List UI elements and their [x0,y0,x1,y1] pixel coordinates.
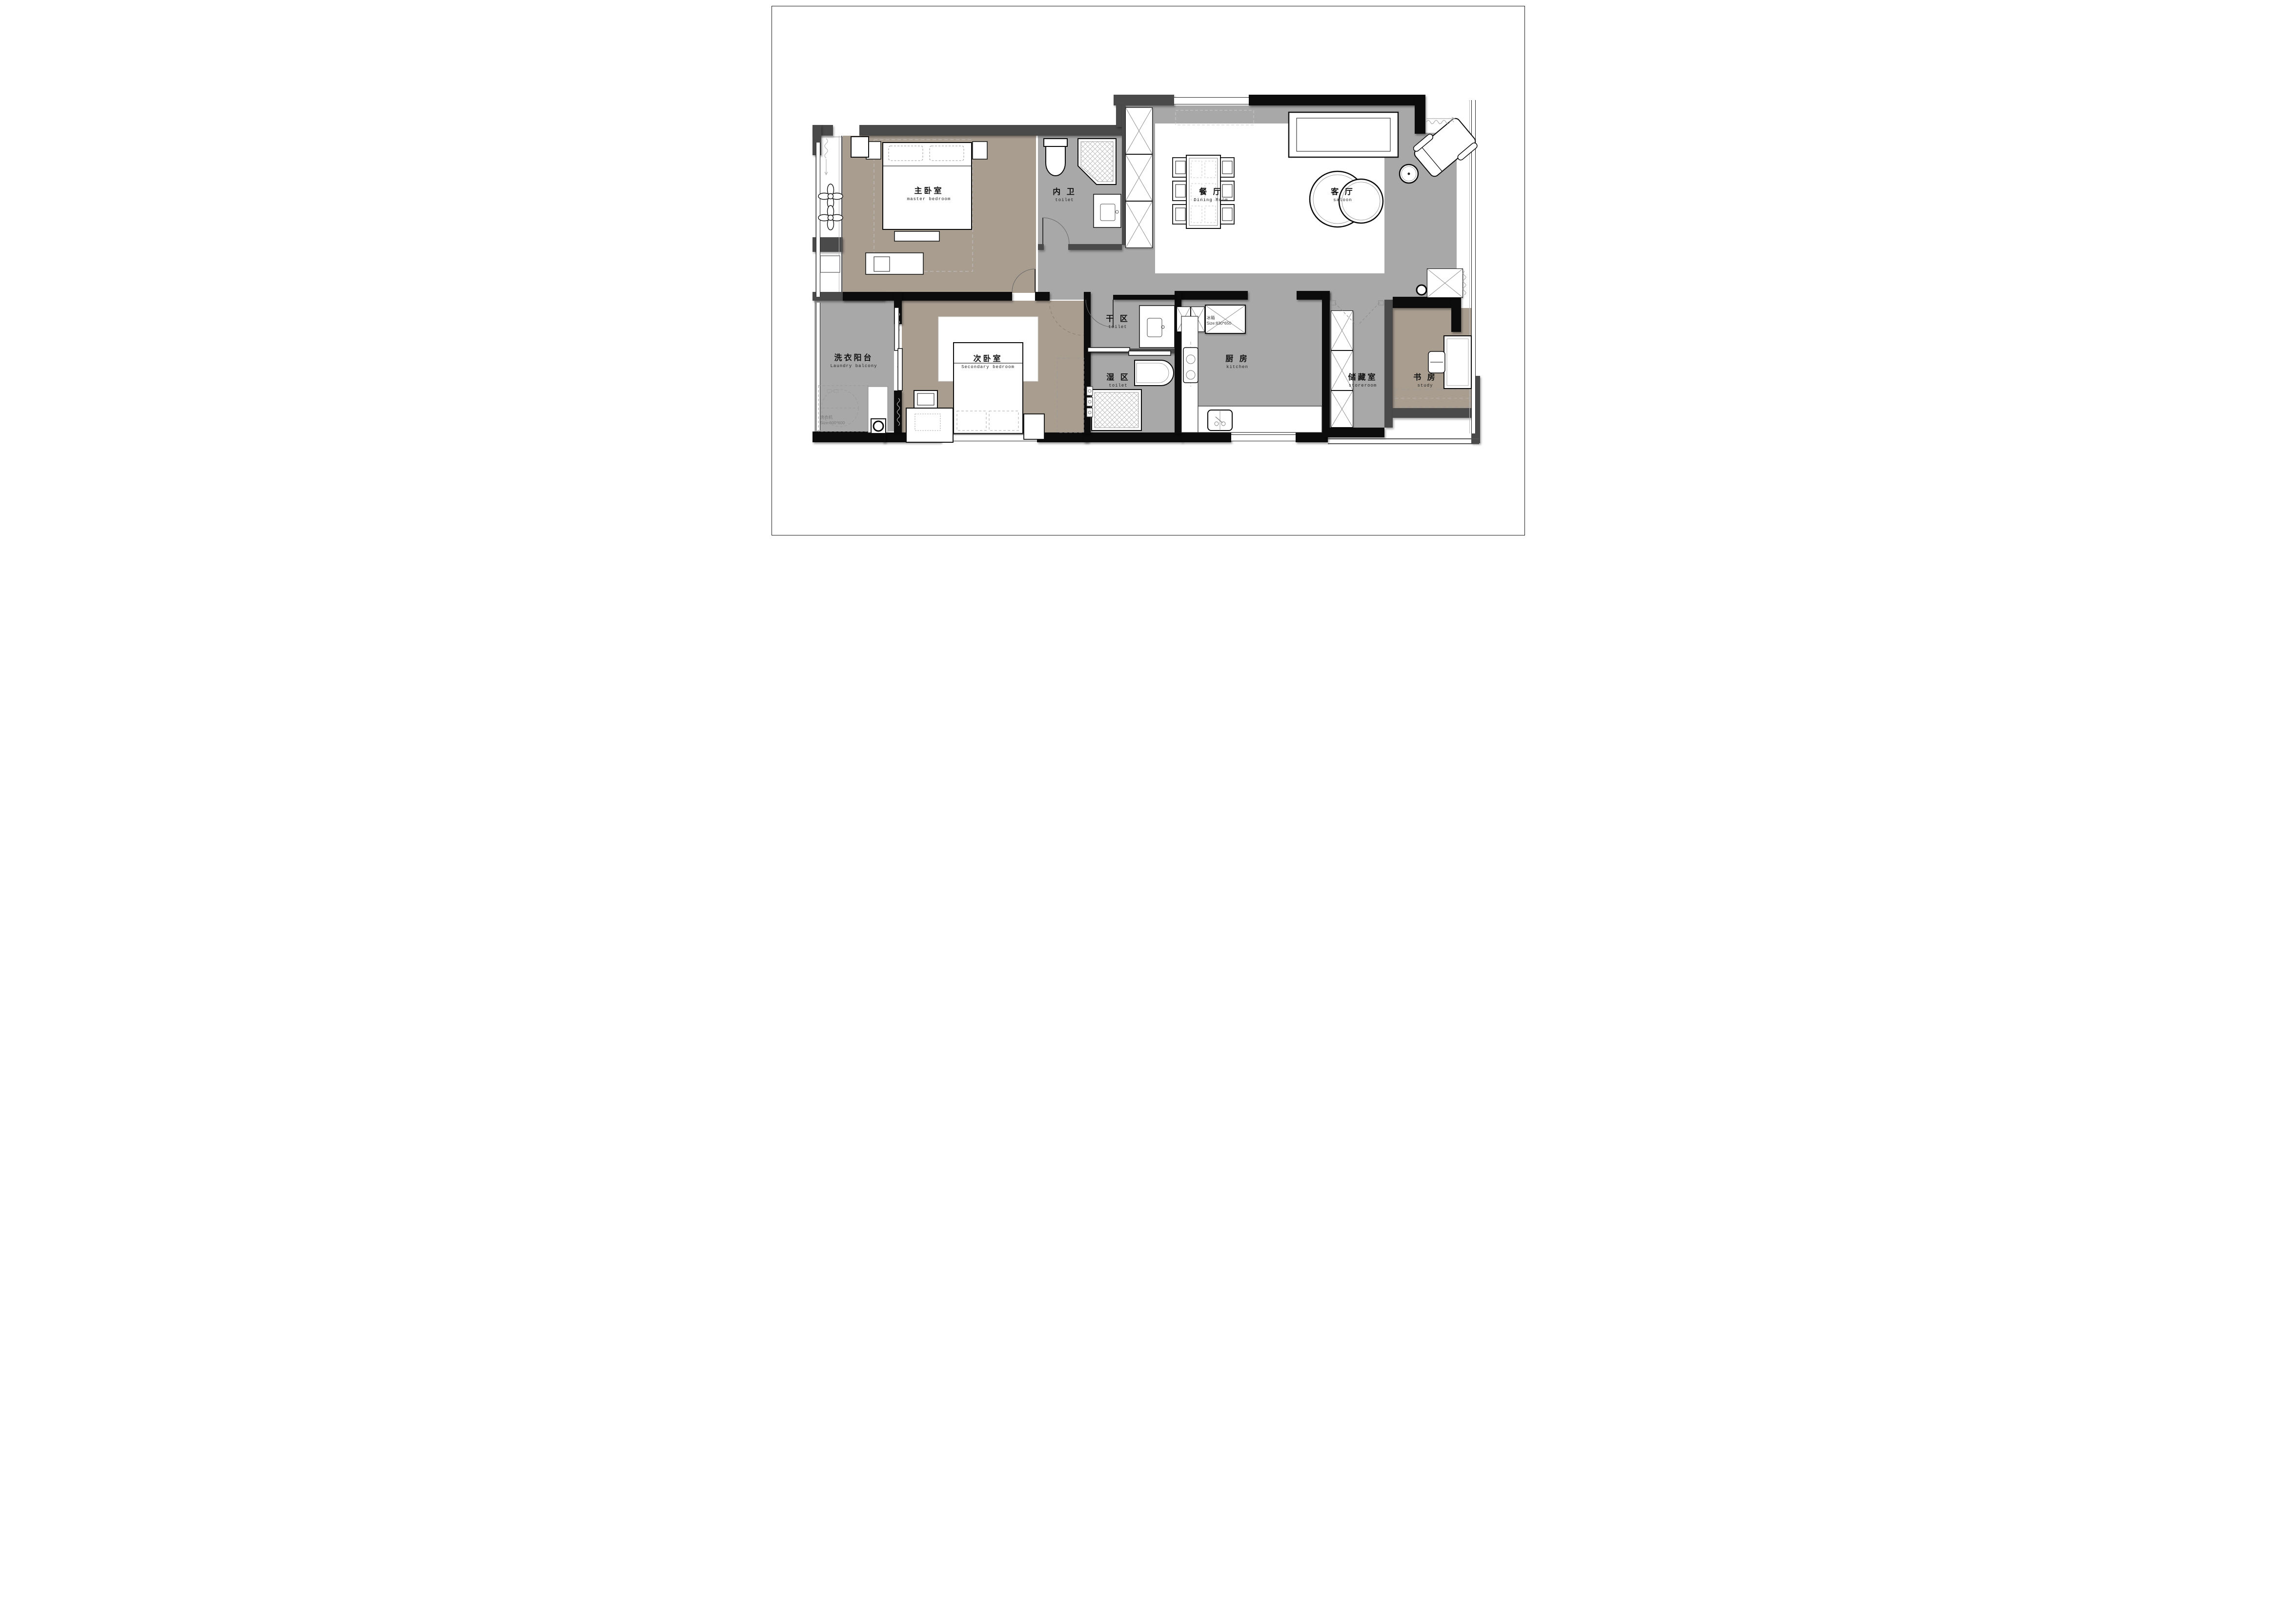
room-label-secondary-bedroom: 次卧室 Secondary bedroom [961,355,1015,370]
cabinet-x-icon [1126,202,1152,247]
window-line [839,136,839,292]
wall-segment [1323,428,1384,437]
wall-segment [1384,300,1393,428]
window [941,434,1037,441]
wall-segment [1068,244,1122,250]
floor-plan-sheet: 主卧室 master bedroom 内 卫 toilet 餐 厅 Dining… [766,0,1531,541]
floor-ensuite-toilet [1038,136,1122,245]
room-name-zh: 洗衣阳台 [830,354,877,363]
room-label-storeroom: 储藏室 storeroom [1348,373,1377,388]
hallway-cabinet [1125,201,1153,248]
wall-segment [813,432,886,442]
room-label-study: 书 房 study [1413,373,1437,388]
room-name-zh: 餐 厅 [1194,188,1228,197]
room-name-en: master bedroom [907,197,951,202]
floor-dry-area [1091,300,1175,352]
room-name-en: Secondary bedroom [961,365,1015,370]
cabinet-x-icon [1331,391,1353,427]
window [1174,97,1249,104]
wall-segment [1038,244,1044,250]
room-name-en: Dining Room [1194,198,1228,203]
wall-segment [1084,349,1177,353]
room-name-en: toilet [1053,198,1076,203]
room-label-living-room: 客 厅 saloon [1331,188,1354,203]
floor-corridor [1038,245,1122,300]
wall-segment [1113,295,1175,300]
room-label-wet-area: 湿 区 toilet [1106,373,1130,388]
storeroom-cabinet [1331,391,1353,428]
cabinet-x-icon [1126,108,1152,154]
kitchen-cabinet [1177,307,1191,332]
wall-segment [1393,408,1471,418]
kitchen-cabinet [1191,307,1205,332]
wall-segment [1322,291,1330,433]
window [1231,434,1296,441]
fridge-label: 冰箱 Size:830*650 [1207,315,1232,326]
room-label-dry-area: 干 区 toilet [1106,315,1129,329]
wall-segment [1116,105,1122,127]
room-name-en: toilet [1106,383,1130,388]
wall-segment [843,292,1012,301]
wall-segment [894,292,902,324]
hallway-cabinet [1125,107,1153,154]
wall-segment [1084,292,1091,433]
window [816,143,820,297]
wall-segment [1181,432,1231,442]
floor-master-bedroom [843,136,1036,293]
room-name-zh: 储藏室 [1348,373,1377,382]
cabinet-x-icon [1126,155,1152,201]
room-name-en: study [1413,383,1437,388]
cabinet-x-icon [1331,311,1353,350]
terrace-line [1328,443,1479,444]
room-name-en: toilet [1106,325,1129,329]
wall-segment [1393,297,1452,308]
wall-segment [1249,95,1416,105]
window-line [1469,100,1470,433]
fridge-name: 冰箱 [1207,315,1232,321]
room-name-zh: 书 房 [1413,373,1437,382]
cabinet-x-icon [1177,307,1190,331]
wall-segment [1114,95,1174,105]
floor-wet-area [1091,352,1175,432]
room-name-zh: 湿 区 [1106,373,1130,382]
room-label-master-bedroom: 主卧室 master bedroom [907,187,951,202]
room-label-laundry-balcony: 洗衣阳台 Laundry balcony [830,354,877,369]
cabinet-x-icon [1427,269,1463,297]
room-name-zh: 干 区 [1106,315,1129,324]
wall-segment [1035,292,1050,301]
wall-segment [883,432,941,442]
room-name-en: kitchen [1225,365,1249,370]
corner-wardrobe [1427,268,1463,298]
window [816,303,820,431]
hallway-cabinet [1125,154,1153,201]
room-name-zh: 客 厅 [1331,188,1354,197]
room-name-zh: 主卧室 [907,187,951,196]
washer-size: Size:600*600 [820,420,845,426]
storeroom-cabinet [1331,310,1353,350]
wall-segment [1175,291,1248,300]
room-name-en: storeroom [1348,383,1377,388]
room-name-zh: 内 卫 [1053,188,1076,197]
fridge-size: Size:830*650 [1207,321,1232,326]
wall-segment [1451,297,1461,332]
window-line [841,136,842,292]
washer-label: 洗衣机 Size:600*600 [820,415,845,425]
wall-segment [894,391,902,432]
room-name-en: saloon [1331,198,1354,203]
wall-segment [859,125,1122,136]
terrace-line [1328,438,1479,439]
room-label-kitchen: 厨 房 kitchen [1225,355,1249,370]
wall-segment [1415,95,1425,134]
room-label-dining-room: 餐 厅 Dining Room [1194,188,1228,203]
cabinet-x-icon [1191,307,1204,331]
window [1471,100,1476,433]
wall-segment [1037,432,1089,442]
room-name-zh: 次卧室 [961,355,1015,364]
room-label-ensuite-toilet: 内 卫 toilet [1053,188,1076,203]
room-name-en: Laundry balcony [830,364,877,369]
room-name-zh: 厨 房 [1225,355,1249,364]
washer-name: 洗衣机 [820,415,845,420]
wall-segment [1084,432,1182,442]
